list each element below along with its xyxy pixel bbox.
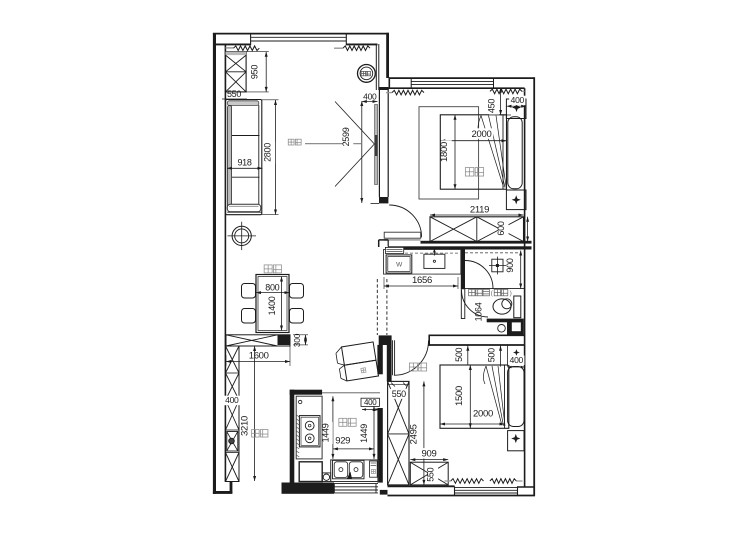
svg-text:1449: 1449 xyxy=(320,423,330,442)
svg-text:2000: 2000 xyxy=(473,409,493,420)
svg-text:400: 400 xyxy=(364,398,377,407)
svg-text:1064: 1064 xyxy=(473,302,483,321)
svg-text:1656: 1656 xyxy=(412,275,432,286)
svg-text:600: 600 xyxy=(496,221,506,235)
svg-text:400: 400 xyxy=(225,395,239,405)
svg-text:1449: 1449 xyxy=(359,424,369,443)
svg-text:550: 550 xyxy=(227,89,241,99)
svg-text:1800: 1800 xyxy=(439,142,450,162)
svg-text:950: 950 xyxy=(250,65,260,79)
svg-text:500: 500 xyxy=(454,347,464,361)
svg-text:2119: 2119 xyxy=(470,205,489,216)
svg-text:929: 929 xyxy=(335,435,350,446)
svg-text:2000: 2000 xyxy=(472,129,492,140)
svg-text:): ) xyxy=(510,290,512,297)
svg-text:550: 550 xyxy=(392,389,406,399)
svg-text:2800: 2800 xyxy=(263,143,273,162)
svg-text:400: 400 xyxy=(363,91,377,101)
svg-text:1600: 1600 xyxy=(249,351,269,362)
svg-text:550: 550 xyxy=(426,467,436,481)
svg-text:900: 900 xyxy=(505,258,515,272)
svg-text:1400: 1400 xyxy=(267,296,277,315)
svg-text:909: 909 xyxy=(422,449,437,460)
svg-text:400: 400 xyxy=(510,355,524,365)
svg-text:3210: 3210 xyxy=(239,416,250,436)
svg-text:2495: 2495 xyxy=(408,424,419,444)
svg-text:1500: 1500 xyxy=(454,386,465,406)
svg-text:400: 400 xyxy=(511,95,525,105)
svg-text:2599: 2599 xyxy=(341,127,351,146)
svg-text:800: 800 xyxy=(265,283,279,293)
svg-text:500: 500 xyxy=(487,348,497,362)
svg-text:918: 918 xyxy=(237,157,251,167)
svg-text:450: 450 xyxy=(487,99,497,113)
